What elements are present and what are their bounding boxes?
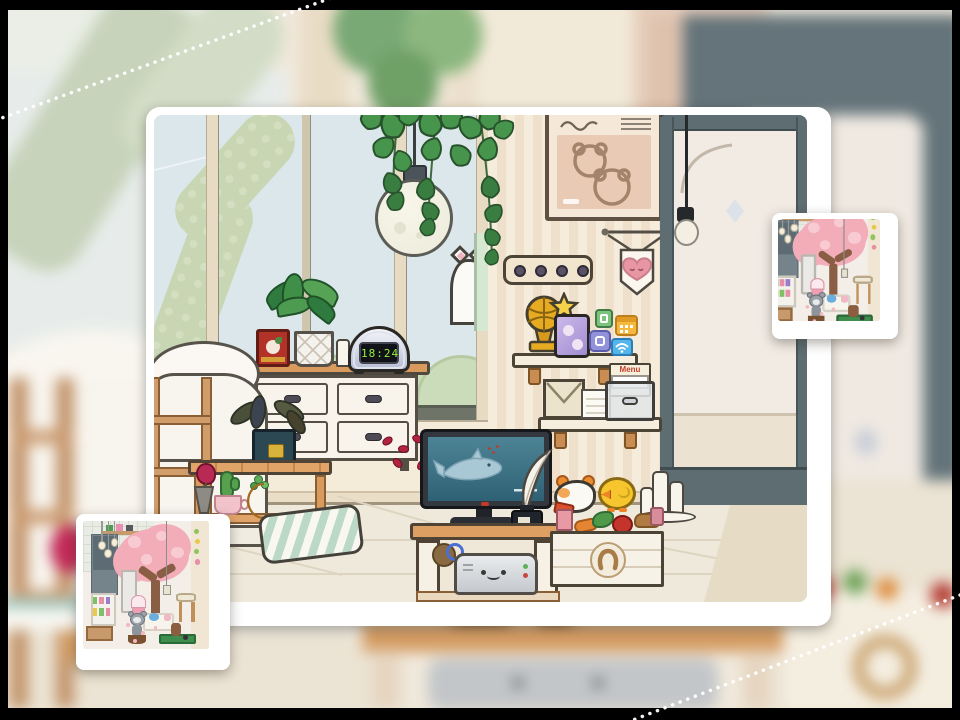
calendar-dot — [630, 325, 633, 328]
app-icon-green — [595, 309, 613, 328]
drawer-handle — [365, 433, 382, 441]
mini-right-wall — [191, 521, 209, 649]
hook-knob — [535, 265, 547, 277]
mini-stool-leg — [856, 284, 859, 303]
mini-bottle — [106, 608, 110, 616]
mini-bench — [86, 626, 114, 641]
crate-badge — [590, 542, 626, 578]
shelf-bracket — [624, 432, 637, 449]
mini-bulb-cord — [788, 219, 789, 235]
mini-bulb — [104, 549, 112, 558]
hanging-ivy-icon — [340, 115, 515, 284]
chick-wing — [618, 487, 630, 498]
mini-mat-ball — [859, 315, 864, 320]
envelope — [543, 379, 585, 419]
hook-knob — [514, 265, 526, 277]
mini-canopy-spot — [128, 536, 141, 548]
tin-band — [261, 357, 285, 362]
mini-swing-lamp — [841, 269, 848, 279]
drawer-handle — [365, 395, 382, 403]
calendar-dot — [620, 330, 623, 333]
paper-line — [586, 412, 606, 414]
poster-bears-icon — [557, 135, 651, 209]
calendar-dot — [625, 330, 628, 333]
mini-swing-cord — [844, 219, 845, 271]
clock-display: 18:24 — [359, 342, 399, 364]
door-glass-lower — [673, 416, 797, 469]
wifi-icon — [613, 340, 631, 354]
mini-stool-leg — [179, 602, 182, 622]
thumbnail-right-content — [778, 219, 880, 321]
mini-petal — [820, 312, 824, 316]
wall-hook-rack — [503, 255, 593, 285]
mini-bottle — [780, 279, 784, 286]
thumbnail-photo-left[interactable] — [76, 514, 230, 670]
mini-petal — [832, 307, 836, 311]
tablet-bear2 — [572, 339, 583, 350]
bulb-cord — [685, 115, 688, 211]
storage-box — [605, 381, 655, 421]
horseshoe-icon — [592, 544, 624, 576]
ladder-rung — [154, 415, 212, 425]
mini-stool-seat — [853, 276, 872, 284]
wall-poster — [545, 115, 663, 221]
mini-bottle — [786, 290, 790, 297]
mini-canopy-spot — [171, 547, 184, 559]
hanging-bulb-icon — [674, 219, 699, 246]
console-smile — [487, 572, 500, 580]
mini-bottle — [93, 597, 97, 605]
tv-stand-top — [410, 523, 562, 540]
mini-bulb-cord — [782, 219, 783, 228]
mini-koala-pot — [128, 635, 146, 644]
mini-shelf-item — [126, 525, 134, 531]
poster-dash — [563, 199, 579, 204]
pot-sticker — [268, 444, 284, 458]
paper-line — [586, 405, 606, 407]
mini-petal — [133, 639, 137, 643]
mini-garland-dot — [870, 235, 875, 240]
envelope-flap — [546, 382, 582, 408]
app-icon-wifi — [611, 338, 633, 356]
cherry-blossom-room-scene — [778, 219, 880, 321]
room-scene: Menu — [154, 115, 807, 602]
mini-bottle — [780, 290, 784, 297]
menu-book-title: Menu — [611, 365, 649, 375]
alarm-clock: 18:24 — [348, 324, 412, 374]
app-glyph — [595, 336, 605, 346]
console-button-red — [523, 573, 528, 578]
mini-shelf-item — [116, 524, 124, 530]
mini-swing-cord — [166, 521, 167, 588]
mini-canopy-spot — [141, 554, 152, 564]
mini-petal — [126, 623, 130, 627]
mini-bottle — [786, 279, 790, 286]
mini-bulb — [111, 538, 119, 547]
shelf-bracket — [554, 432, 567, 449]
poster-squiggle — [553, 115, 655, 135]
tv-power-dot — [481, 502, 489, 506]
mini-petal — [812, 319, 816, 321]
veg-jar — [650, 507, 664, 526]
mini-bulb-cord — [108, 521, 109, 549]
rose-bloom — [196, 463, 216, 485]
hamster-patch — [558, 488, 570, 498]
cherry-blossom-room-scene — [83, 521, 209, 649]
door-glass-highlight — [676, 133, 756, 197]
mini-garland-dot — [195, 559, 200, 564]
mini-koala-pot — [808, 315, 825, 321]
mini-bottle — [99, 608, 103, 616]
poster-art — [557, 135, 651, 209]
hook-knob — [556, 265, 568, 277]
calendar-dot — [620, 325, 623, 328]
mini-canopy-spot — [820, 240, 831, 250]
door-frame-top — [660, 115, 807, 131]
clock-foot — [354, 370, 364, 374]
crate-box — [550, 531, 664, 587]
cactus-arm — [230, 477, 240, 491]
mini-mat-item — [171, 623, 181, 636]
mini-bed-pillow — [164, 614, 172, 620]
mini-stool-leg — [868, 284, 871, 303]
shelf-bracket — [528, 368, 541, 385]
mini-bulb-cord — [101, 521, 102, 541]
app-icon-purple — [589, 330, 611, 352]
mini-canopy-spot — [849, 232, 861, 243]
console-eye — [481, 570, 486, 575]
mini-mat-ball — [183, 635, 188, 640]
mini-bulb — [791, 224, 798, 232]
mini-garland-dot — [871, 244, 876, 249]
thumbnail-photo-right[interactable] — [772, 213, 898, 339]
console-eye — [501, 570, 506, 575]
tablet-bear — [563, 325, 574, 336]
box-handle — [622, 397, 638, 405]
window-edge-bar2 — [476, 329, 488, 420]
thumbnail-left-content — [83, 521, 209, 649]
mini-petal — [141, 631, 145, 635]
candle — [669, 481, 684, 515]
mini-bulb-cord — [114, 521, 115, 538]
game-console — [454, 553, 538, 595]
door-frame-left — [660, 117, 674, 505]
mini-bench — [778, 307, 793, 321]
vegetable-crate — [550, 507, 666, 595]
tin-leaf — [275, 337, 282, 344]
red-tin — [256, 329, 290, 367]
console-button-green — [523, 564, 528, 569]
mini-garland-dot — [194, 529, 199, 534]
mini-bottle — [93, 608, 97, 616]
main-room-photo[interactable]: Menu — [146, 107, 831, 626]
mini-stool-leg — [191, 602, 194, 622]
mini-koala-muzzle — [812, 299, 819, 305]
clock-foot — [394, 370, 404, 374]
mini-mat-item — [849, 305, 859, 317]
mini-petal — [154, 626, 158, 630]
calendar-dot — [625, 325, 628, 328]
mini-bed-blue — [827, 295, 837, 302]
mini-swing-lamp — [163, 585, 171, 595]
hook-knob — [577, 265, 589, 277]
app-icon-calendar — [615, 315, 638, 336]
cactus-cup — [214, 495, 242, 515]
console-vent — [463, 569, 473, 571]
tablet — [554, 314, 590, 358]
mini-bed-pillow — [841, 296, 848, 302]
paper-line — [586, 398, 606, 400]
mini-bottle — [99, 597, 103, 605]
mini-bed-blue — [149, 613, 159, 621]
calendar-strip — [617, 317, 636, 322]
plant-pot — [294, 331, 334, 367]
console-vent — [463, 564, 473, 566]
veg-cup — [556, 509, 573, 531]
mini-bottle — [106, 597, 110, 605]
veg-greens — [592, 511, 614, 528]
app-glyph — [600, 314, 608, 323]
mini-stool-seat — [176, 593, 196, 602]
mini-petal — [805, 305, 809, 309]
